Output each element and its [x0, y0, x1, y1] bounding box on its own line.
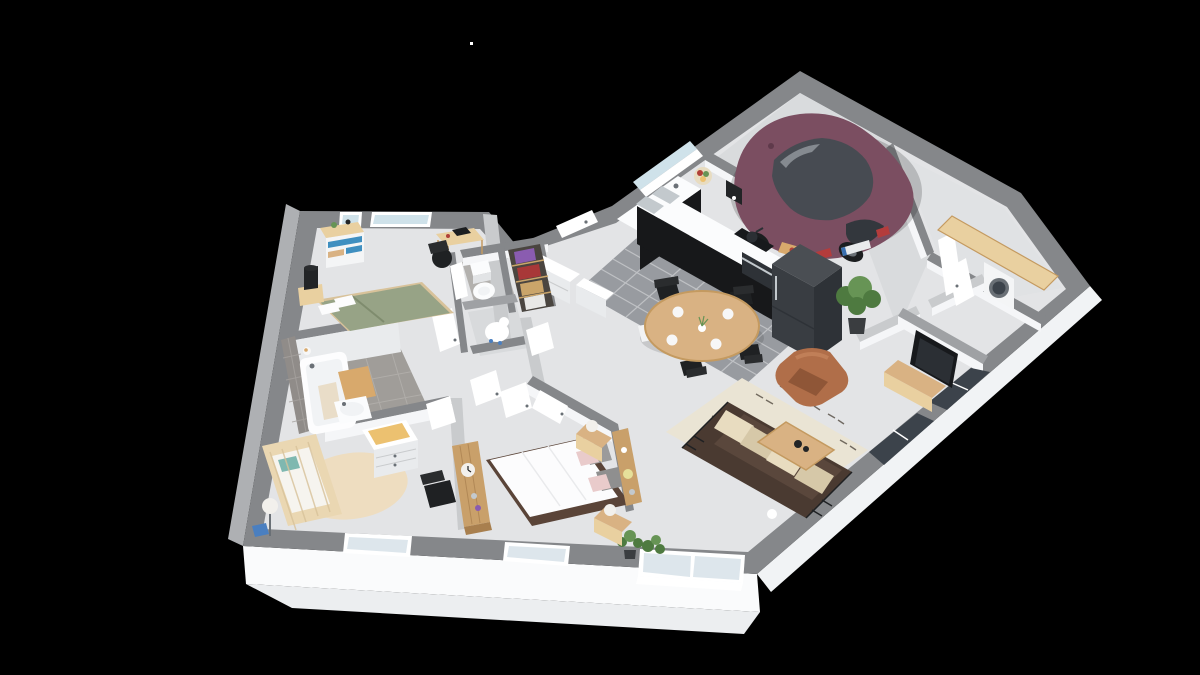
master-plant-leaf3: [655, 544, 665, 554]
bedroom1-window-glass: [373, 215, 429, 224]
fruit-red: [697, 170, 703, 176]
floor-lamp-globe: [262, 498, 278, 514]
plate-1: [673, 307, 684, 318]
south-plant-leaf3: [633, 538, 643, 548]
nightstand1-lamp: [586, 420, 598, 432]
dresser-plant: [331, 222, 337, 228]
coffee-table-decor1: [794, 440, 802, 448]
master-plant-leaf2: [651, 535, 661, 545]
shelf-lamp: [623, 469, 633, 479]
plate-3: [667, 335, 678, 346]
plate-4: [711, 339, 722, 350]
sliding-glass-door-pane2: [693, 556, 741, 580]
front-door-handle: [584, 220, 587, 223]
floor-plan-render: [0, 0, 1200, 675]
figure-accent1: [489, 339, 493, 343]
washbasin-faucet: [342, 402, 346, 406]
fruit-yellow: [700, 176, 706, 182]
console-decor1: [471, 493, 477, 499]
shelf-item2: [629, 489, 635, 495]
shelf-item1: [621, 447, 627, 453]
nightstand2-lamp: [604, 504, 616, 516]
sofa-knob: [767, 509, 777, 519]
dresser-decor: [346, 220, 351, 225]
south-plant-pot: [624, 550, 636, 559]
bed1-lamp-top: [304, 265, 318, 271]
hall-plant-pot: [848, 318, 866, 334]
kitchen-faucet: [674, 184, 679, 189]
car-mirror: [768, 143, 774, 149]
plate-2: [723, 309, 734, 320]
fruit-green: [703, 171, 709, 177]
washer-door-glass: [993, 282, 1006, 295]
coffee-cup: [732, 196, 736, 200]
hall-plant-leaf4: [848, 297, 866, 315]
console-decor2: [475, 505, 481, 511]
cooktop-pan: [747, 232, 758, 243]
stray-white-pixel: [470, 42, 473, 45]
soap: [304, 348, 308, 352]
white-figure-head: [499, 317, 509, 327]
coffee-table-decor2: [803, 446, 809, 452]
figure-accent2: [498, 341, 502, 345]
tub-faucet: [310, 364, 315, 369]
floor-plan-svg: [0, 0, 1200, 675]
desk-mug: [446, 234, 450, 238]
